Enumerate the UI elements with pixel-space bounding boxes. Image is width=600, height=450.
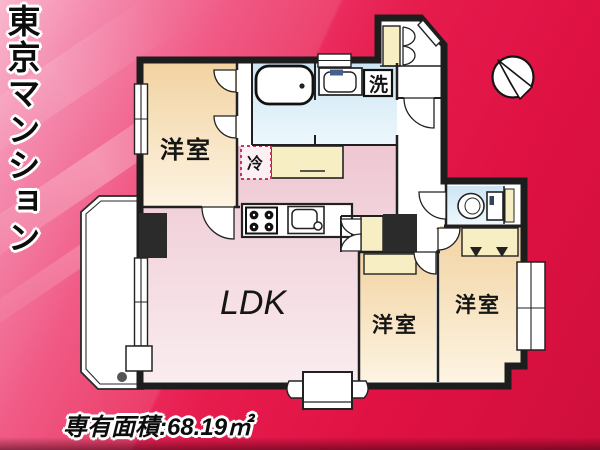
window-right	[517, 262, 545, 350]
ldk-label: LDK	[220, 284, 287, 322]
bedroom-bottom-right-label: 洋室	[455, 293, 501, 317]
window-ldk-left	[135, 258, 148, 346]
kitchen-back-counter	[271, 146, 343, 178]
washing-machine-label: 洗	[369, 73, 388, 96]
window-top	[318, 54, 351, 67]
drain-circle	[117, 372, 127, 382]
bathtub-icon	[256, 66, 313, 104]
window-bedroom-left	[135, 84, 148, 154]
refrigerator-label: 冷	[247, 154, 263, 173]
closet-bedroom-right	[462, 228, 518, 257]
washbasin-icon	[319, 68, 362, 95]
floor-plan: 洋室 LDK 洋室 洋室 冷 洗	[0, 0, 600, 450]
flyer-canvas: 東京マンション	[0, 0, 600, 450]
exclusive-area-text: 専有面積:68.19㎡	[63, 407, 251, 442]
toilet-shelf	[505, 189, 514, 222]
stove-icon	[246, 208, 277, 234]
closet-bedroom-middle	[364, 254, 416, 274]
kitchen-sink-icon	[288, 207, 324, 234]
entrance-shoe-cabinet	[383, 26, 400, 66]
pillar	[139, 213, 167, 258]
kitchen-counter	[242, 204, 352, 237]
closet-hall	[361, 216, 383, 252]
pillar	[383, 214, 417, 252]
bedroom-top-left-label: 洋室	[160, 136, 212, 164]
compass-icon	[493, 57, 534, 100]
bedroom-bottom-middle-label: 洋室	[372, 313, 418, 337]
outdoor-unit	[126, 346, 152, 371]
